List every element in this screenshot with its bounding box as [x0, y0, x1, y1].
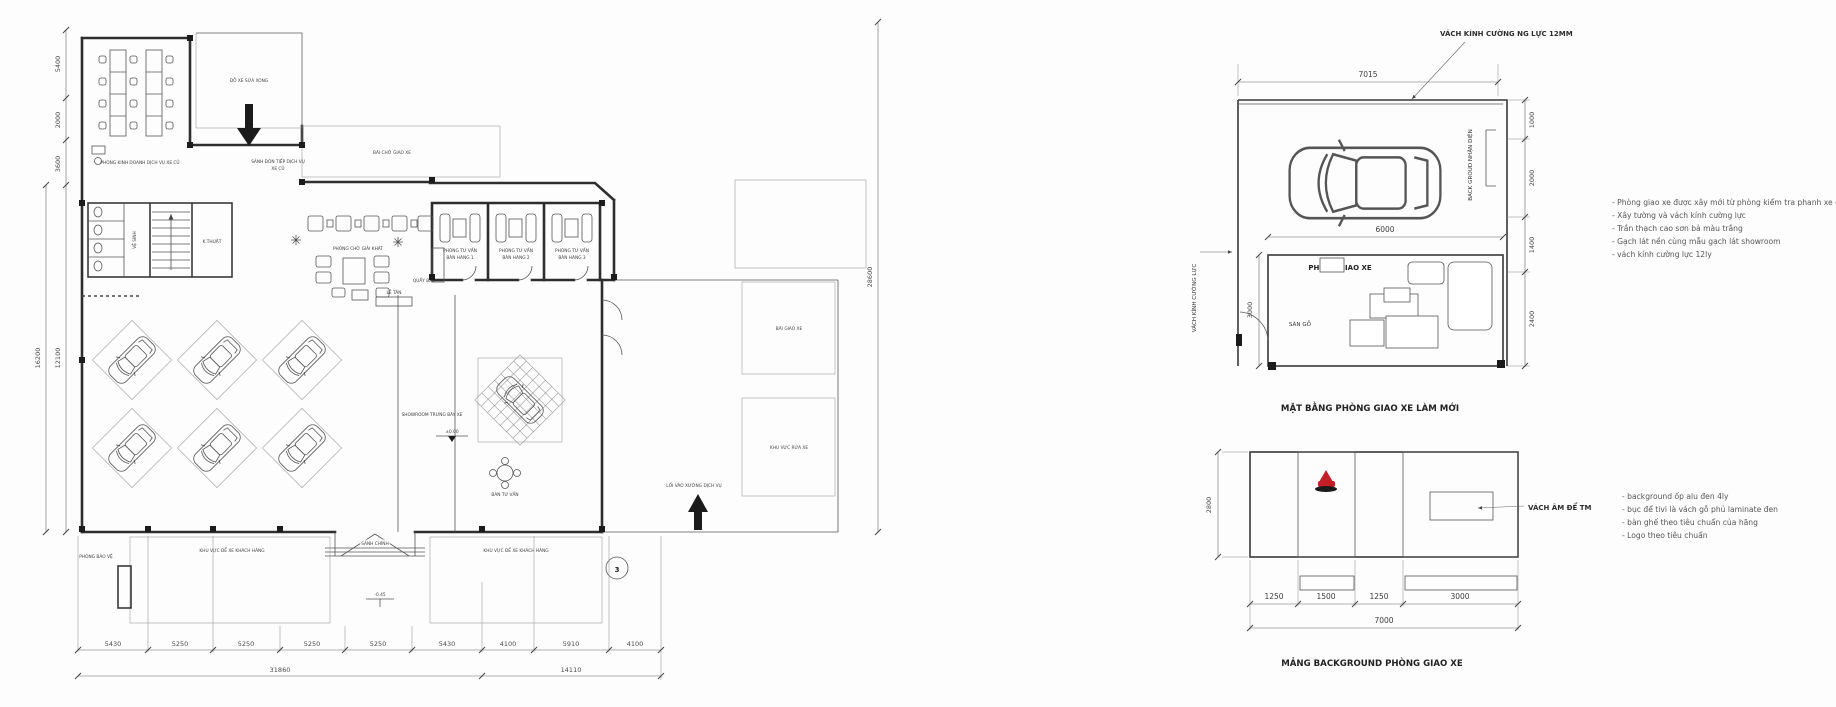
svg-text:- Trần thạch cao sơn bả màu tr: - Trần thạch cao sơn bả màu trắng [1612, 224, 1743, 233]
plant-icon [291, 235, 403, 247]
consult-rooms: PHÒNG TƯ VẤN BÁN HÀNG 1 PHÒNG TƯ VẤN BÁN… [440, 214, 592, 261]
delivery-room-caption: MẶT BẰNG PHÒNG GIAO XE LÀM MỚI [1281, 401, 1459, 414]
consult-table-label: BÀN TƯ VẤN [491, 490, 518, 498]
showroom-label: SHOWROOM TRƯNG BÀY XE [402, 411, 463, 418]
panel-hatch-tv [1403, 452, 1518, 557]
wc-label: VỆ SINH [130, 231, 138, 248]
service-lobby-label-1: SẢNH ĐÓN TIẾP DỊCH VỤ [251, 157, 305, 165]
architectural-drawing-sheet: PHÒNG KINH DOANH DỊCH VỤ XE CŨ ĐỖ XE SỬA… [0, 0, 1836, 707]
entrance-level-marker: -0.45 [366, 592, 394, 607]
recess-label: VÁCH ÂM ĐỂ TM [1528, 502, 1591, 512]
up-arrow-icon [688, 494, 708, 530]
svg-text:5250: 5250 [370, 640, 387, 648]
delivery-wait-label: BÃI CHỜ GIAO XE [373, 149, 411, 156]
svg-text:5910: 5910 [563, 640, 580, 648]
turntable [475, 355, 566, 446]
leader-line [1478, 506, 1524, 508]
background-panel-caption: MẢNG BACKGROUND PHÒNG GIAO XE [1281, 657, 1463, 669]
plinth [1405, 576, 1517, 590]
service-lobby-label-2: XE CŨ [271, 165, 284, 172]
svg-text:2400: 2400 [1528, 311, 1536, 328]
svg-text:1500: 1500 [1316, 592, 1335, 601]
backdrop-bracket [1486, 130, 1496, 186]
svg-text:4100: 4100 [500, 640, 517, 648]
consult-furniture [440, 214, 592, 242]
consult-room-number: BÁN HÀNG 2 [502, 254, 530, 261]
repaired-parking-label: ĐỖ XE SỬA XONG [230, 76, 268, 84]
svg-text:2800: 2800 [1205, 497, 1213, 514]
reception-desk [376, 297, 412, 306]
svg-text:5430: 5430 [105, 640, 122, 648]
display-cars [92, 320, 341, 487]
consult-room-label: PHÒNG TƯ VẤN [555, 246, 589, 254]
car-icon [189, 420, 245, 476]
svg-text:- background ốp alu đen 4ly: - background ốp alu đen 4ly [1622, 492, 1729, 501]
svg-text:5250: 5250 [304, 640, 321, 648]
level-marker: ±0.00 [436, 429, 468, 442]
guard-box [118, 566, 131, 608]
service-core: VỆ SINH K.THUẬT [88, 203, 232, 277]
glass-wall-note: VÁCH KÍNH CƯỜNG NG LỰC 12MM [1440, 29, 1573, 38]
consult-room-label: PHÒNG TƯ VẤN [499, 246, 533, 254]
svg-text:16200: 16200 [34, 348, 42, 369]
svg-text:3: 3 [615, 566, 620, 574]
car-icon [104, 332, 160, 388]
workshop-entry-label: LỐI VÀO XƯỞNG DỊCH VỤ [666, 481, 721, 489]
svg-text:- Phòng giao xe được xây mới t: - Phòng giao xe được xây mới từ phòng ki… [1612, 198, 1836, 207]
office-desks [92, 50, 173, 165]
down-arrow-icon [237, 104, 261, 146]
plinth [1300, 576, 1354, 590]
svg-text:7015: 7015 [1358, 70, 1377, 79]
backdrop-label: BACK GROUD NHẬN DIỆN [1466, 129, 1474, 201]
svg-text:- Xây tường và vách kính cường: - Xây tường và vách kính cường lực [1612, 211, 1746, 220]
delivery-room-notes: - Phòng giao xe được xây mới từ phòng ki… [1612, 198, 1836, 259]
svg-text:5430: 5430 [439, 640, 456, 648]
guard-label: PHÒNG BẢO VỆ [79, 552, 113, 560]
car-icon [1290, 140, 1441, 226]
service-parking-hatch [735, 180, 866, 268]
svg-text:3600: 3600 [54, 156, 62, 173]
panel-dimensions: 2800 1250 1500 1250 3000 7000 [1205, 449, 1521, 631]
svg-text:- vách kính cường lực 12ly: - vách kính cường lực 12ly [1612, 250, 1712, 259]
svg-text:-0.45: -0.45 [374, 592, 385, 598]
wash-area-label: KHU VỰC RỬA XE [770, 443, 808, 451]
leader-line [1412, 42, 1465, 99]
svg-text:12100: 12100 [54, 348, 62, 369]
car-icon [274, 332, 330, 388]
columns [79, 35, 617, 532]
main-entrance: SẢNH CHÍNH -0.45 [325, 532, 425, 607]
svg-text:- bục để tivi là vách gỗ phủ l: - bục để tivi là vách gỗ phủ laminate đe… [1622, 505, 1778, 514]
svg-text:- bàn ghế theo tiêu chuẩn của: - bàn ghế theo tiêu chuẩn của hãng [1622, 518, 1758, 527]
customer-parking-label: KHU VỰC ĐỂ XE KHÁCH HÀNG [199, 546, 264, 554]
car-icon [189, 332, 245, 388]
svg-text:6000: 6000 [1375, 225, 1394, 234]
office-label: PHÒNG KINH DOANH DỊCH VỤ XE CŨ [100, 159, 179, 166]
delivery-yard-label: BÃI GIAO XE [776, 325, 803, 332]
waiting-chairs [308, 216, 433, 231]
svg-text:7000: 7000 [1374, 616, 1393, 625]
car-icon [274, 420, 330, 476]
columns [1268, 360, 1505, 370]
svg-text:31860: 31860 [270, 666, 291, 674]
panel-outline [1250, 452, 1518, 557]
consult-room-number: BÁN HÀNG 1 [446, 254, 474, 261]
svg-text:2000: 2000 [54, 112, 62, 129]
svg-text:1250: 1250 [1264, 592, 1283, 601]
car-icon [104, 420, 160, 476]
svg-text:5250: 5250 [172, 640, 189, 648]
svg-text:3000: 3000 [1450, 592, 1469, 601]
door-arc [602, 300, 622, 355]
svg-text:14110: 14110 [561, 666, 582, 674]
door-arc [462, 266, 588, 280]
glass-wall-label: VÁCH KÍNH CƯỜNG LỰC [1191, 264, 1198, 333]
svg-text:2000: 2000 [1528, 170, 1536, 187]
sheet-marker: 3 [606, 557, 628, 579]
walls [82, 33, 838, 532]
svg-text:±0.00: ±0.00 [445, 429, 458, 435]
svg-text:- Logo theo tiêu chuẩn: - Logo theo tiêu chuẩn [1622, 531, 1708, 540]
consult-room-number: BÁN HÀNG 3 [558, 254, 586, 261]
lounge-sofas [316, 256, 389, 300]
svg-text:1400: 1400 [1528, 237, 1536, 254]
panel-hatch-logo [1298, 452, 1355, 557]
svg-text:3000: 3000 [1246, 302, 1254, 319]
svg-text:1250: 1250 [1369, 592, 1388, 601]
lounge-label: PHÒNG CHỜ GIẢI KHÁT [333, 244, 383, 252]
delivery-room-plan: VÁCH KÍNH CƯỜNG NG LỰC 12MM PHÒNG GIAO X… [1191, 29, 1836, 414]
stairs [152, 212, 190, 270]
bottom-dimensions: 5430 5250 5250 5250 5250 5430 4100 5910 … [75, 536, 664, 680]
background-panel-elevation: VÁCH ÂM ĐỂ TM 2800 1250 1500 1250 3000 7… [1205, 449, 1778, 669]
tv-recess [1430, 492, 1493, 520]
wood-floor-label: SÀN GỖ [1289, 320, 1312, 328]
customer-parking-label: KHU VỰC ĐỂ XE KHÁCH HÀNG [483, 546, 548, 554]
left-dimensions: 5400 2000 3600 12100 16200 [34, 27, 69, 535]
right-dimension: 28600 [866, 19, 881, 535]
svg-text:5400: 5400 [54, 56, 62, 73]
logo-icon [1315, 470, 1337, 492]
tech-room-label: K.THUẬT [203, 238, 222, 245]
svg-text:1000: 1000 [1528, 112, 1536, 129]
background-panel-notes: - background ốp alu đen 4ly - bục để tiv… [1622, 492, 1778, 540]
svg-text:- Gạch lát nền cùng mẫu gạch l: - Gạch lát nền cùng mẫu gạch lát showroo… [1612, 237, 1781, 246]
showroom-floor-plan: PHÒNG KINH DOANH DỊCH VỤ XE CŨ ĐỖ XE SỬA… [34, 19, 881, 680]
drawing-canvas: PHÒNG KINH DOANH DỊCH VỤ XE CŨ ĐỖ XE SỬA… [0, 0, 1836, 707]
consult-table [490, 458, 521, 489]
svg-text:28600: 28600 [866, 267, 874, 288]
svg-text:4100: 4100 [627, 640, 644, 648]
consult-room-label: PHÒNG TƯ VẤN [443, 246, 477, 254]
svg-text:5250: 5250 [238, 640, 255, 648]
